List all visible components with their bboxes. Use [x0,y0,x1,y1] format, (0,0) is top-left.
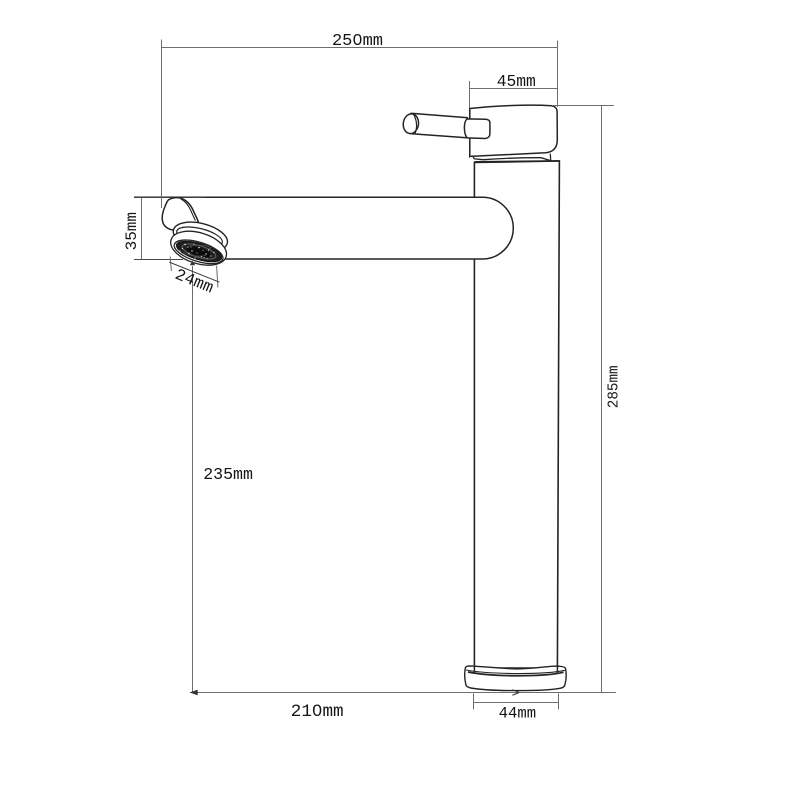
svg-text:250mm: 250mm [332,32,383,51]
svg-text:285mm: 285mm [606,365,622,408]
svg-text:44mm: 44mm [499,704,536,722]
svg-text:210mm: 210mm [291,702,344,722]
svg-text:45mm: 45mm [497,72,536,91]
svg-text:35mm: 35mm [123,212,141,250]
svg-text:235mm: 235mm [203,465,253,484]
